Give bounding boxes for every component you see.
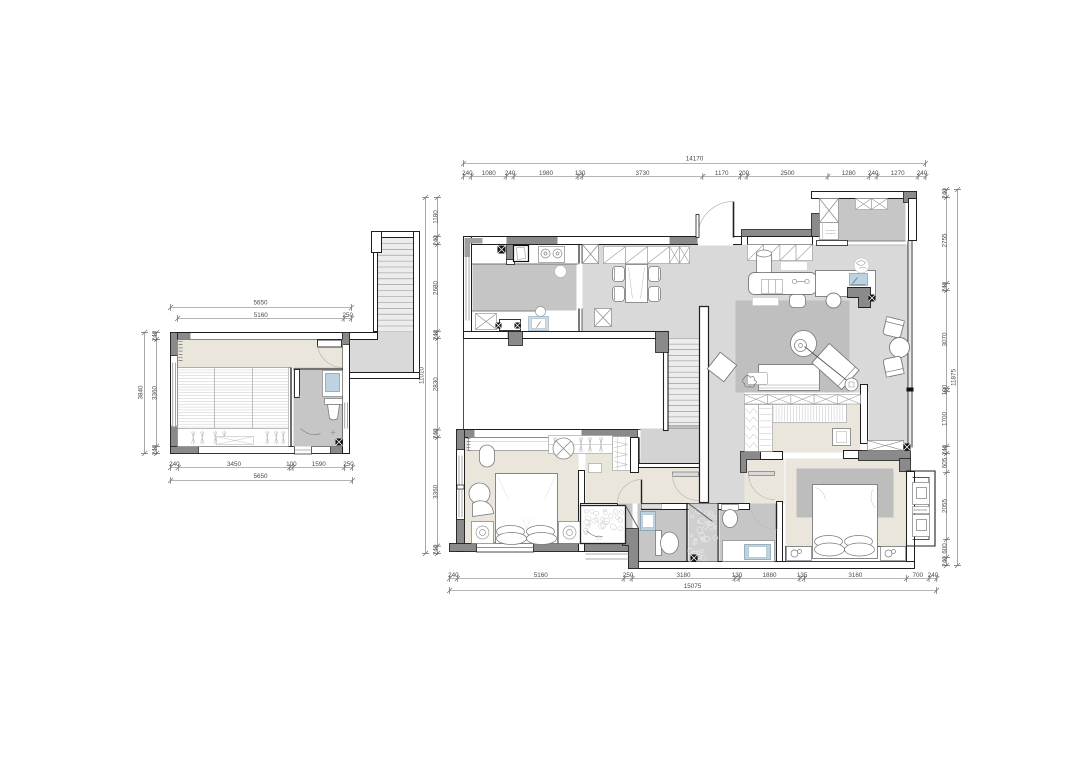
svg-text:240: 240: [433, 235, 440, 246]
svg-text:3360: 3360: [433, 484, 440, 499]
svg-text:100: 100: [286, 461, 297, 468]
svg-text:250: 250: [343, 461, 354, 468]
svg-text:240: 240: [448, 572, 459, 579]
svg-text:605: 605: [942, 457, 949, 468]
svg-text:700: 700: [913, 572, 924, 579]
svg-text:240: 240: [868, 170, 879, 177]
svg-text:3360: 3360: [152, 386, 159, 401]
svg-text:3730: 3730: [635, 170, 650, 177]
svg-text:600: 600: [942, 543, 949, 554]
svg-text:240: 240: [942, 188, 949, 199]
svg-text:250: 250: [623, 572, 634, 579]
svg-text:1880: 1880: [762, 572, 777, 579]
svg-text:130: 130: [732, 572, 743, 579]
svg-text:1080: 1080: [482, 170, 497, 177]
svg-text:240: 240: [152, 330, 159, 341]
svg-text:3070: 3070: [942, 332, 949, 347]
svg-text:11010: 11010: [419, 366, 426, 384]
svg-text:240: 240: [942, 444, 949, 455]
svg-text:5160: 5160: [254, 312, 269, 319]
svg-text:135: 135: [797, 572, 808, 579]
svg-text:1590: 1590: [312, 461, 327, 468]
svg-text:130: 130: [575, 170, 586, 177]
svg-text:2680: 2680: [433, 281, 440, 296]
svg-text:2500: 2500: [780, 170, 795, 177]
svg-text:240: 240: [169, 461, 180, 468]
svg-text:1980: 1980: [539, 170, 554, 177]
svg-text:200: 200: [739, 170, 750, 177]
svg-text:240: 240: [462, 170, 473, 177]
svg-text:240: 240: [505, 170, 516, 177]
svg-text:240: 240: [433, 329, 440, 340]
svg-text:1170: 1170: [715, 170, 729, 177]
svg-text:240: 240: [917, 170, 928, 177]
svg-text:5650: 5650: [253, 473, 268, 480]
svg-text:240: 240: [433, 544, 440, 555]
svg-text:250: 250: [342, 312, 353, 319]
svg-text:240: 240: [928, 572, 939, 579]
svg-text:1280: 1280: [842, 170, 857, 177]
svg-text:2755: 2755: [942, 233, 949, 248]
svg-text:3160: 3160: [848, 572, 863, 579]
svg-text:240: 240: [942, 281, 949, 292]
svg-text:240: 240: [942, 556, 949, 567]
svg-text:1180: 1180: [433, 210, 440, 224]
svg-text:1270: 1270: [891, 170, 906, 177]
svg-text:3180: 3180: [676, 572, 691, 579]
svg-text:15075: 15075: [684, 583, 702, 590]
svg-text:3840: 3840: [138, 385, 145, 400]
svg-text:5650: 5650: [253, 300, 268, 307]
svg-text:240: 240: [433, 428, 440, 439]
svg-text:2055: 2055: [942, 499, 949, 514]
svg-text:3450: 3450: [227, 461, 242, 468]
svg-text:240: 240: [152, 444, 159, 455]
svg-text:1700: 1700: [942, 412, 949, 427]
svg-text:100: 100: [942, 384, 949, 395]
svg-text:14170: 14170: [686, 156, 704, 163]
svg-text:5160: 5160: [534, 572, 549, 579]
svg-text:11875: 11875: [951, 368, 958, 386]
svg-text:2830: 2830: [433, 377, 440, 392]
